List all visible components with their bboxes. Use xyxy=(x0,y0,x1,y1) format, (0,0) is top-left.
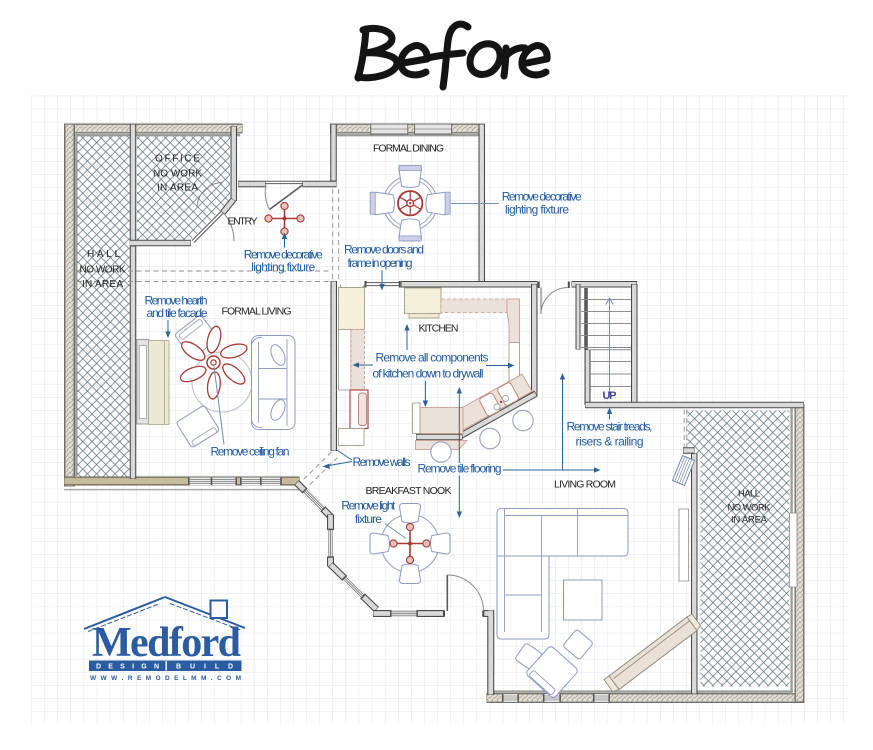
svg-text:KITCHEN: KITCHEN xyxy=(419,323,460,335)
svg-text:Remove all components: Remove all components xyxy=(376,351,489,365)
svg-text:D E S I G N: D E S I G N xyxy=(96,664,159,671)
svg-text:Remove light: Remove light xyxy=(341,499,396,513)
svg-text:BREAKFAST NOOK: BREAKFAST NOOK xyxy=(366,485,453,497)
svg-text:Remove stair treads,: Remove stair treads, xyxy=(567,420,653,434)
svg-text:Remove tile flooring: Remove tile flooring xyxy=(418,462,502,476)
svg-text:risers & railing: risers & railing xyxy=(576,435,644,449)
svg-text:NO WORK: NO WORK xyxy=(153,169,203,180)
svg-text:LIVING ROOM: LIVING ROOM xyxy=(554,479,617,491)
svg-text:IN AREA: IN AREA xyxy=(82,279,124,290)
svg-text:NO WORK: NO WORK xyxy=(728,503,772,514)
svg-text:frame in opening: frame in opening xyxy=(348,256,413,270)
svg-text:of kitchen down to drywall: of kitchen down to drywall xyxy=(373,367,484,381)
svg-text:HALL: HALL xyxy=(87,249,121,260)
svg-text:ENTRY: ENTRY xyxy=(228,216,259,228)
svg-text:W W W . R E M O D E L M M . C: W W W . R E M O D E L M M . C O M xyxy=(90,675,241,682)
svg-text:and tile facade: and tile facade xyxy=(147,306,208,320)
svg-text:Remove doors and: Remove doors and xyxy=(344,243,424,257)
svg-text:B U I L D: B U I L D xyxy=(176,664,233,671)
svg-text:HALL: HALL xyxy=(738,489,761,500)
svg-text:IN AREA: IN AREA xyxy=(157,183,199,194)
svg-text:Remove walls: Remove walls xyxy=(353,455,411,469)
svg-text:lighting fixture: lighting fixture xyxy=(505,203,569,217)
svg-text:OFFICE: OFFICE xyxy=(155,154,201,165)
svg-text:UP: UP xyxy=(603,390,617,402)
svg-text:IN AREA: IN AREA xyxy=(731,515,768,526)
svg-text:lighting fixture: lighting fixture xyxy=(251,260,315,274)
svg-text:FORMAL LIVING: FORMAL LIVING xyxy=(222,306,293,318)
svg-text:fixture: fixture xyxy=(355,512,382,526)
svg-text:FORMAL DINING: FORMAL DINING xyxy=(373,143,445,155)
svg-text:NO WORK: NO WORK xyxy=(80,265,127,276)
svg-text:Remove ceiling fan: Remove ceiling fan xyxy=(211,445,290,459)
svg-text:Remove decorative: Remove decorative xyxy=(502,190,582,204)
svg-text:Medford: Medford xyxy=(92,620,241,666)
